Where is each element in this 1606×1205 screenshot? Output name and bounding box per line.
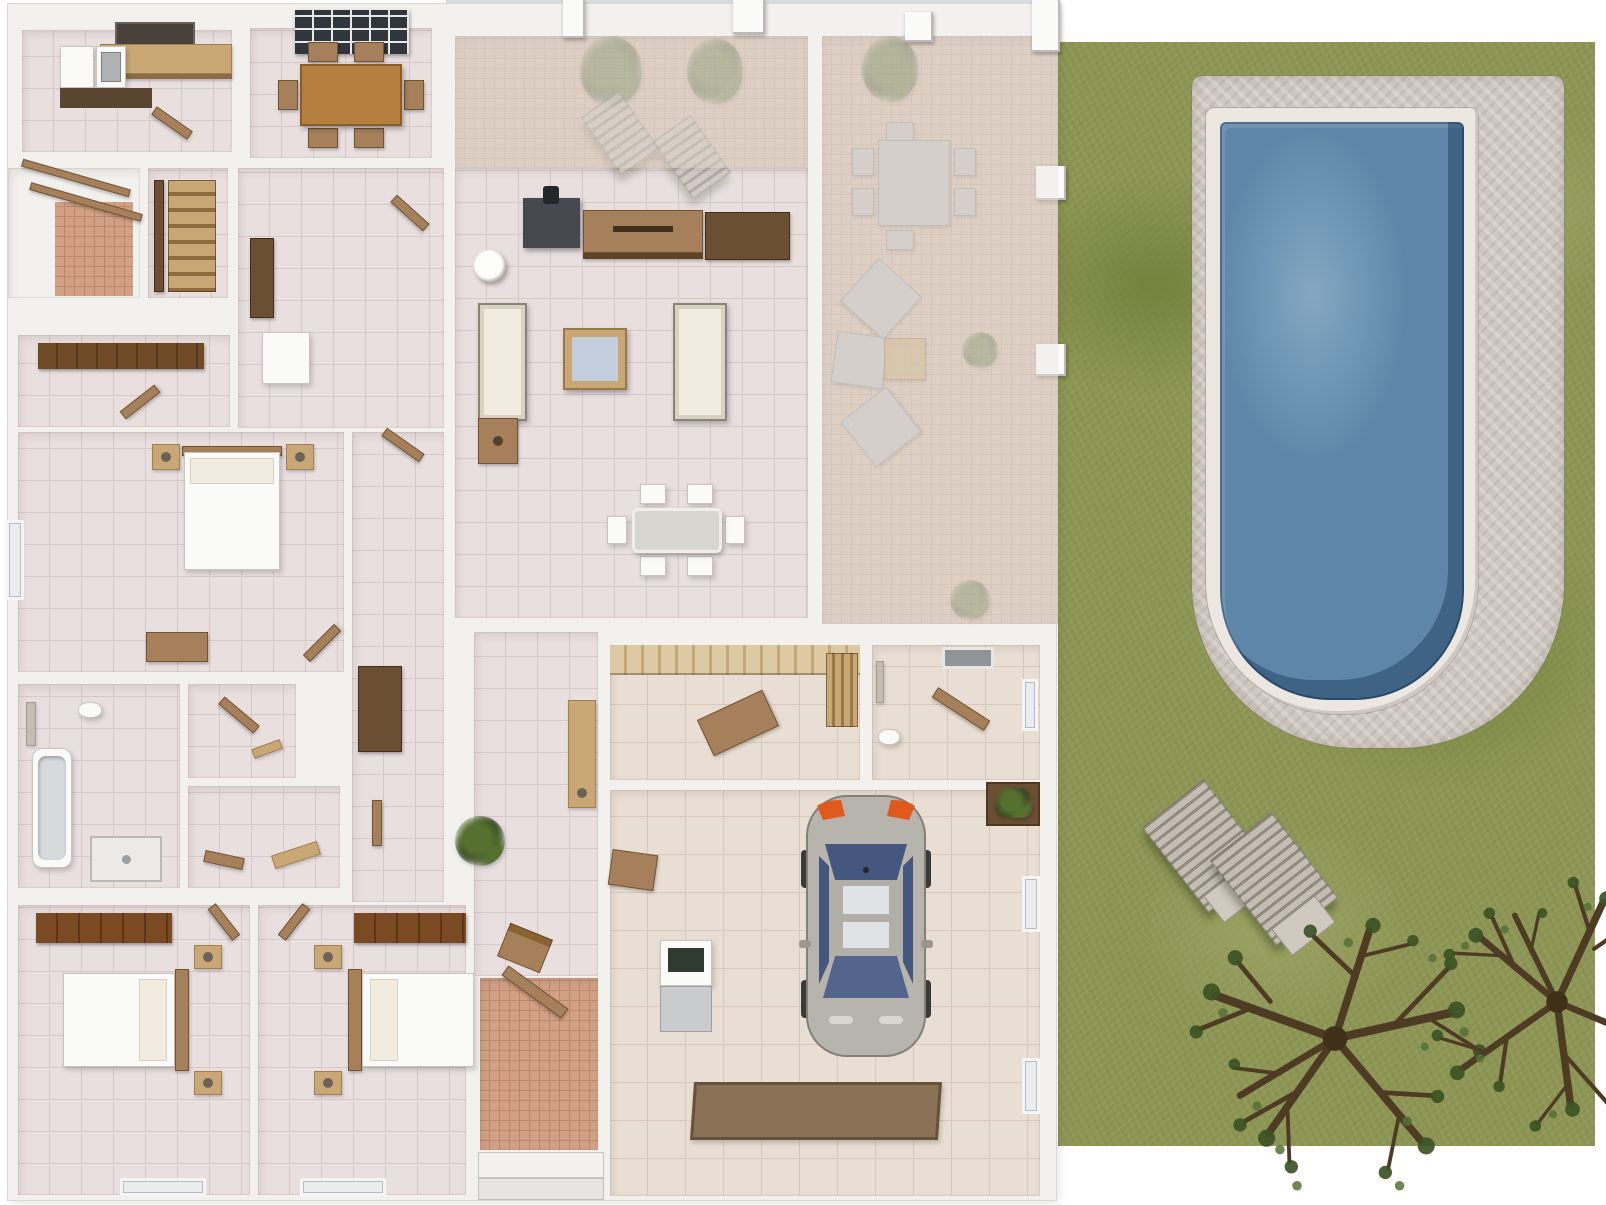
- plant-icon: [962, 332, 998, 368]
- floor-lamp-icon: [474, 250, 506, 282]
- roof-pillar: [905, 12, 933, 42]
- room-entry-vestibule: [480, 978, 598, 1150]
- bed-pillow: [370, 979, 398, 1061]
- door-leaf: [932, 687, 991, 731]
- window: [1022, 679, 1038, 731]
- shower-drain-icon: [122, 855, 131, 864]
- room-bathroom-garage: [872, 645, 1040, 780]
- bed-pillow: [190, 458, 274, 484]
- room-wc: [188, 684, 296, 778]
- tv-icon: [543, 186, 559, 204]
- room-courtyard-patio: [8, 168, 140, 298]
- bathtub-basin: [38, 756, 66, 860]
- dining-chair-white: [687, 556, 713, 576]
- dining-chair: [404, 80, 424, 110]
- outdoor-chair: [886, 122, 914, 142]
- tall-cabinet: [250, 238, 274, 318]
- media-slot: [613, 226, 673, 232]
- dining-chair-white: [640, 484, 666, 504]
- room-hallway-entry: [474, 632, 598, 976]
- slatted-door: [826, 653, 858, 727]
- range-hood-icon: [115, 22, 195, 46]
- terrace-lounger: [581, 91, 659, 175]
- nightstand: [286, 444, 314, 470]
- knob-icon: [493, 436, 503, 446]
- media-cabinet: [583, 210, 703, 259]
- bench: [271, 841, 321, 869]
- media-cabinet: [705, 212, 790, 260]
- car-icon: [795, 792, 937, 1060]
- lamp-icon: [203, 952, 213, 962]
- bed-pillow: [139, 979, 167, 1061]
- terrace-pillar: [1036, 344, 1066, 376]
- shower-tray: [942, 647, 994, 669]
- outdoor-chair: [852, 148, 874, 176]
- dining-chair-white: [687, 484, 713, 504]
- wardrobe: [38, 343, 204, 369]
- double-bed: [63, 973, 175, 1067]
- tree-icon: [1392, 852, 1606, 1152]
- door-leaf: [208, 903, 241, 941]
- room-bedroom-right: [258, 905, 466, 1195]
- door-leaf: [303, 624, 341, 662]
- lamp-icon: [323, 952, 333, 962]
- tall-wardrobe: [358, 666, 402, 752]
- corner-pillar: [1032, 0, 1060, 52]
- nightstand: [152, 444, 180, 470]
- bed-headboard: [348, 969, 362, 1071]
- nightstand: [314, 1071, 342, 1095]
- lounge-table: [884, 338, 926, 380]
- terrace-pillar: [1036, 166, 1066, 200]
- fridge: [60, 46, 94, 88]
- room-bedroom-left: [18, 905, 250, 1195]
- dining-table-wood: [300, 64, 402, 126]
- entry-step: [478, 1152, 604, 1178]
- staircase-steps: [168, 180, 216, 292]
- bathroom-sink: [78, 702, 102, 718]
- roof-pillar: [733, 0, 765, 34]
- cabinet-shadow-band: [60, 88, 152, 108]
- door-leaf: [151, 106, 193, 139]
- sofa: [478, 303, 527, 421]
- dining-chair-white: [725, 516, 745, 544]
- dining-chair-white: [607, 516, 627, 544]
- room-storage: [188, 786, 340, 888]
- lamp-icon: [323, 1078, 333, 1088]
- shower-tray: [90, 836, 162, 882]
- terrace-fade-overlay: [822, 36, 1058, 624]
- dining-table-white: [632, 508, 722, 553]
- coffee-table: [563, 328, 627, 390]
- door-leaf: [390, 195, 429, 232]
- wardrobe: [36, 913, 172, 943]
- double-bed: [362, 973, 474, 1067]
- kitchen-sink: [96, 46, 126, 88]
- entry-step: [478, 1178, 604, 1200]
- pool-coping: [1206, 108, 1478, 714]
- bench: [697, 690, 779, 757]
- heater-opening: [668, 948, 704, 972]
- window: [1022, 876, 1040, 932]
- coffee-table-glass: [572, 337, 618, 381]
- floor-plan-scene: [0, 0, 1606, 1205]
- nightstand: [194, 1071, 222, 1095]
- dining-chair: [308, 42, 338, 62]
- lounge-seat: [831, 331, 890, 390]
- wood-paneled-wall: [610, 645, 860, 675]
- bed-headboard: [175, 969, 189, 1071]
- water-heater: [660, 940, 712, 986]
- swimming-pool-water: [1220, 122, 1464, 700]
- room-utility: [610, 645, 860, 780]
- lamp-icon: [295, 452, 305, 462]
- outdoor-dining-table: [878, 140, 950, 226]
- outdoor-chair: [886, 230, 914, 250]
- pool-stone-deck: [1192, 76, 1564, 748]
- planter-greenery: [994, 788, 1032, 818]
- lamp-icon: [203, 1078, 213, 1088]
- outdoor-chair: [954, 148, 976, 176]
- mirror: [876, 661, 884, 703]
- palm-plant-icon: [862, 36, 918, 102]
- window: [6, 520, 24, 600]
- hall-cabinet: [568, 700, 596, 808]
- room-garage: [610, 790, 1040, 1196]
- window: [120, 1178, 206, 1196]
- knob-icon: [577, 788, 587, 798]
- room-kitchen: [22, 30, 232, 152]
- room-dining: [250, 28, 432, 158]
- room-master-bedroom: [18, 432, 344, 672]
- plant-icon: [950, 580, 990, 620]
- room-terrace-right: [822, 36, 1058, 624]
- room-closet: [18, 335, 230, 427]
- lounge-seat: [840, 258, 922, 340]
- sofa: [673, 303, 727, 421]
- door-leaf: [372, 800, 382, 846]
- nightstand: [194, 945, 222, 969]
- bench: [251, 739, 283, 759]
- dining-chair: [354, 128, 384, 148]
- outdoor-chair: [954, 188, 976, 216]
- sink-basin: [101, 52, 121, 82]
- toilet-icon: [878, 729, 900, 745]
- side-table: [478, 418, 518, 464]
- water-heater-base: [660, 986, 712, 1032]
- garage-door-mat: [690, 1082, 942, 1140]
- mirror: [26, 702, 36, 746]
- lounge-seat: [840, 386, 921, 467]
- room-terrace-top: [455, 36, 808, 168]
- door-leaf: [218, 696, 260, 733]
- storage-chest: [146, 632, 208, 662]
- potted-plant-icon: [455, 816, 505, 866]
- room-hallway-vertical: [352, 432, 444, 902]
- stair-stringer: [154, 180, 164, 292]
- dining-chair: [278, 80, 298, 110]
- dining-chair: [354, 42, 384, 62]
- room-corridor-top: [238, 168, 444, 428]
- wardrobe: [354, 913, 466, 943]
- palm-plant-icon: [687, 38, 743, 104]
- roof-pillar: [563, 0, 585, 38]
- bathtub: [32, 748, 72, 868]
- nightstand: [314, 945, 342, 969]
- wall-shelf: [608, 849, 659, 891]
- room-bathroom-main: [18, 684, 180, 888]
- outdoor-chair: [852, 188, 874, 216]
- door-leaf: [381, 428, 424, 463]
- tv-cabinet: [523, 198, 580, 248]
- double-bed: [184, 452, 280, 570]
- dining-chair: [308, 128, 338, 148]
- white-cabinet: [262, 332, 310, 384]
- door-leaf: [278, 903, 311, 941]
- hall-chair: [497, 923, 553, 974]
- window: [1022, 1058, 1040, 1114]
- door-leaf: [120, 385, 161, 420]
- room-staircase: [148, 168, 228, 298]
- room-living: [455, 168, 808, 618]
- dining-chair-white: [640, 556, 666, 576]
- bench: [203, 850, 245, 870]
- lamp-icon: [161, 452, 171, 462]
- planter-box: [986, 782, 1040, 826]
- window: [300, 1178, 386, 1196]
